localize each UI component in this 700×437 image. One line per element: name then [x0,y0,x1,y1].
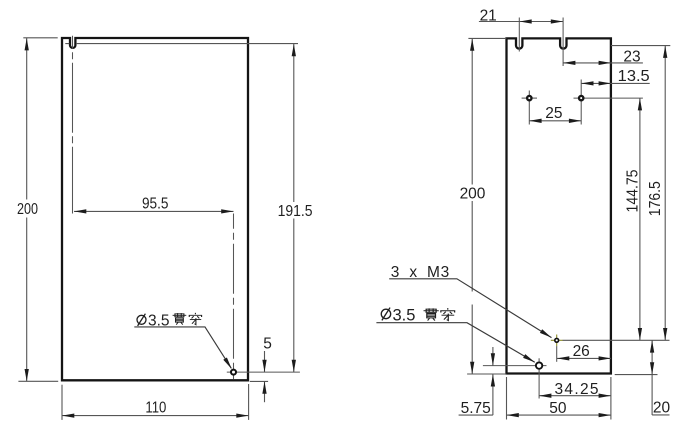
svg-text:21: 21 [480,7,497,24]
svg-text:3.5: 3.5 [393,307,416,325]
svg-text:50: 50 [549,400,567,417]
svg-text:20: 20 [653,400,671,417]
svg-text:34.25: 34.25 [555,381,599,398]
svg-text:176.5: 176.5 [647,181,664,216]
svg-text:23: 23 [623,49,640,66]
svg-text:200: 200 [17,201,38,218]
svg-text:110: 110 [145,400,166,417]
svg-text:191.5: 191.5 [278,203,313,220]
svg-text:25: 25 [545,105,562,122]
svg-text:26: 26 [573,343,590,360]
svg-text:144.75: 144.75 [625,170,642,213]
svg-text:200: 200 [460,186,486,203]
svg-text:13.5: 13.5 [618,68,650,85]
svg-text:5.75: 5.75 [461,400,491,417]
svg-text:3.5: 3.5 [148,312,170,329]
svg-text:5: 5 [263,335,272,352]
svg-text:95.5: 95.5 [142,195,169,212]
